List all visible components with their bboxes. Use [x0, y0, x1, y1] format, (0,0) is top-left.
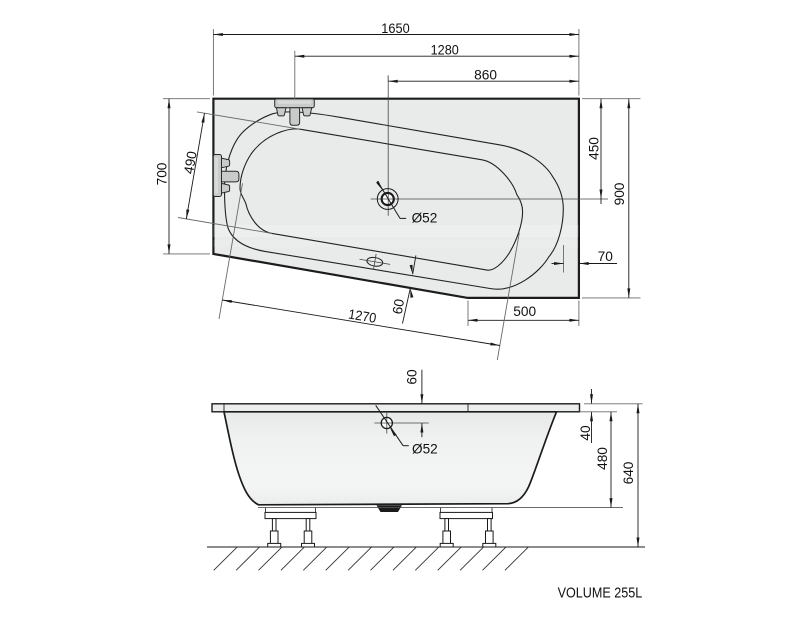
svg-text:60: 60 — [405, 369, 420, 385]
svg-text:700: 700 — [155, 162, 170, 185]
svg-text:860: 860 — [474, 68, 497, 83]
svg-text:Ø52: Ø52 — [412, 442, 438, 457]
svg-text:70: 70 — [598, 249, 614, 264]
svg-text:500: 500 — [513, 304, 536, 319]
svg-text:1280: 1280 — [431, 43, 460, 58]
svg-text:VOLUME 255L: VOLUME 255L — [558, 584, 643, 601]
svg-text:60: 60 — [390, 297, 407, 315]
svg-text:450: 450 — [587, 137, 602, 160]
svg-text:1650: 1650 — [381, 21, 410, 36]
svg-text:Ø52: Ø52 — [412, 211, 438, 226]
svg-text:900: 900 — [612, 182, 627, 205]
svg-text:480: 480 — [595, 447, 610, 470]
svg-text:640: 640 — [621, 461, 636, 484]
svg-text:40: 40 — [578, 425, 593, 441]
